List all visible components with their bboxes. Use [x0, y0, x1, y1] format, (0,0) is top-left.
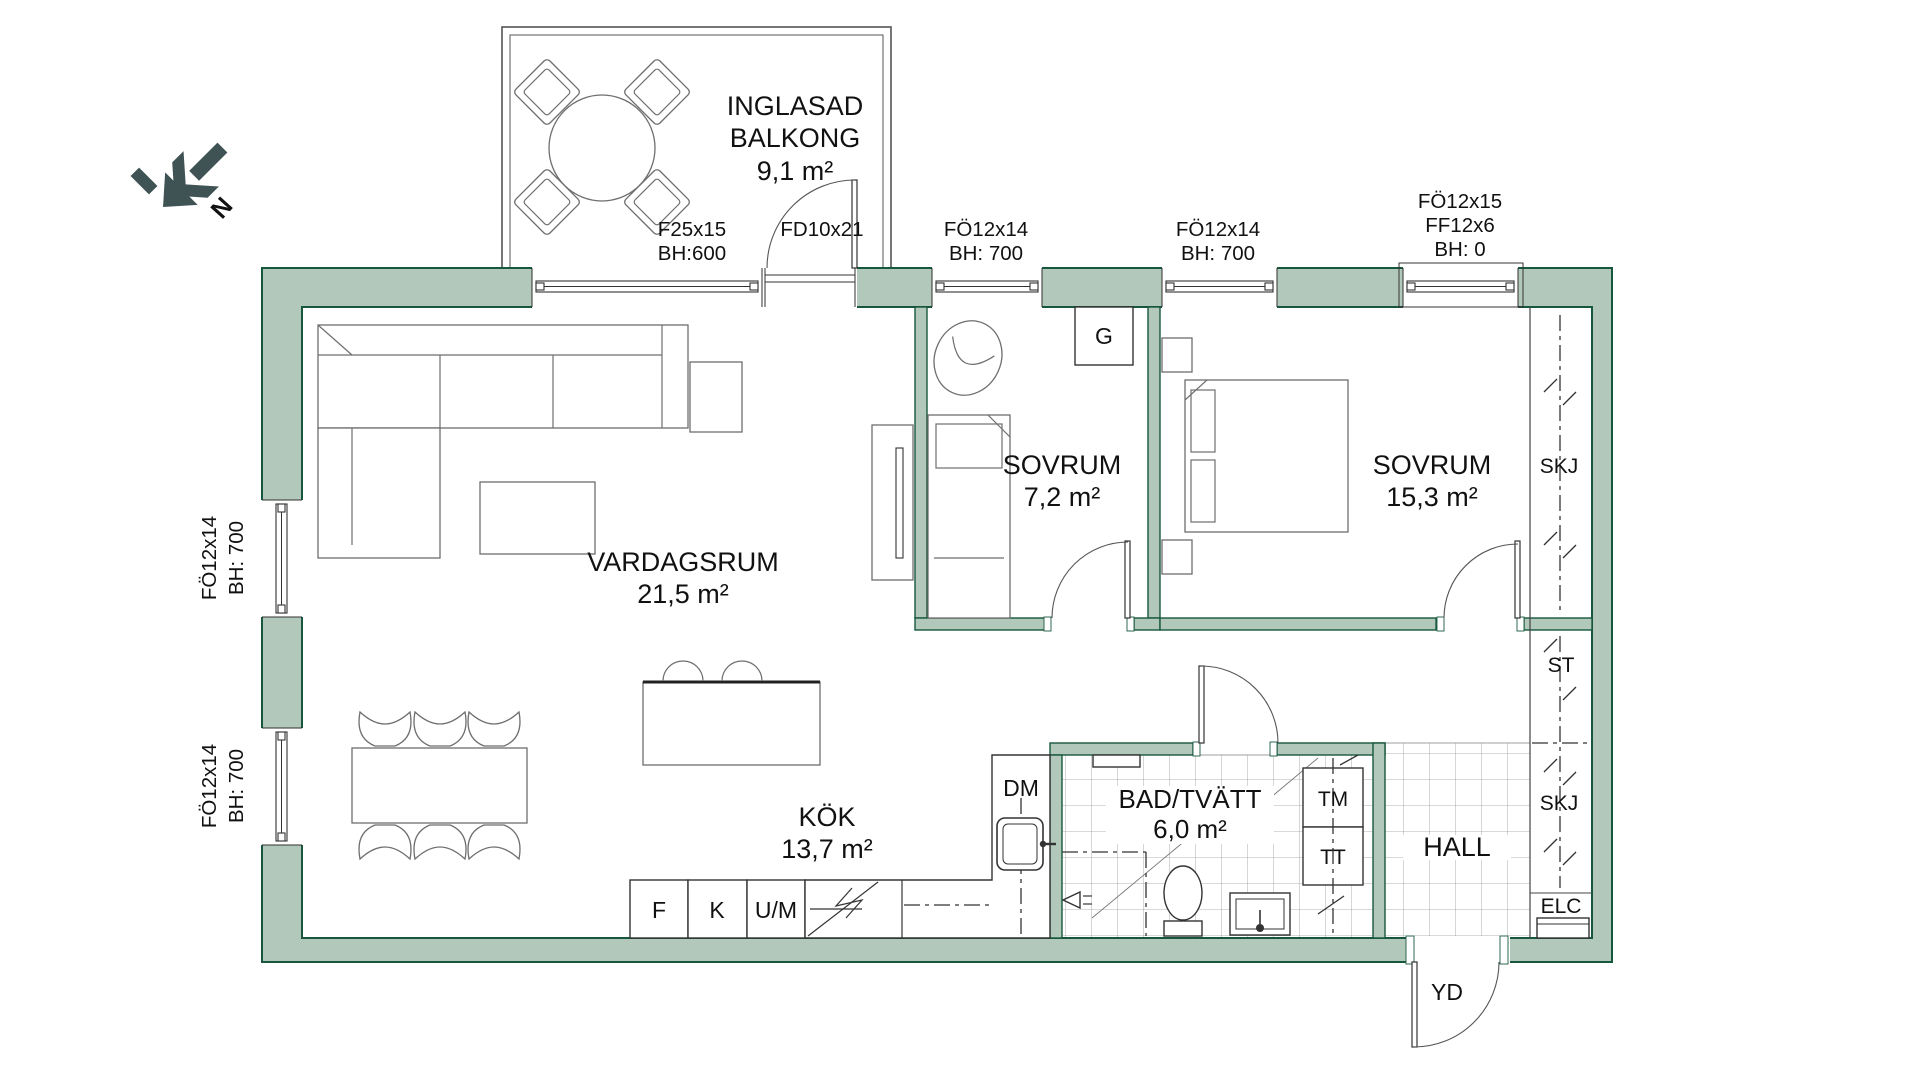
window-label: BH: 700: [225, 521, 248, 595]
balcony-name: BALKONG: [730, 123, 861, 153]
label-freezer: F: [652, 897, 666, 923]
window-label: FÖ12x14: [198, 744, 221, 828]
toilet: [1164, 866, 1202, 936]
balcony-name: INGLASAD: [727, 91, 864, 121]
label-entry-door: YD: [1431, 979, 1463, 1005]
label-wardrobe: G: [1095, 323, 1113, 349]
nightstand: [1162, 338, 1192, 372]
window-label: FÖ12x14: [1176, 218, 1260, 241]
room-name-kitchen: KÖK: [798, 802, 855, 832]
window-label: FÖ12x14: [198, 516, 221, 600]
label-skj-hall: SKJ: [1540, 792, 1579, 815]
shelf: [1093, 755, 1140, 767]
label-fridge: K: [709, 897, 725, 923]
tv-bench: [872, 425, 913, 580]
label-elc: ELC: [1541, 895, 1582, 918]
window-label: BH:600: [658, 242, 726, 265]
floor-plan: N: [0, 0, 1920, 1080]
window-label: BH: 0: [1434, 238, 1485, 261]
room-area-bedroom1: 7,2 m²: [1024, 482, 1101, 512]
door-label: FD10x21: [780, 218, 863, 241]
elc-cabinet: [1537, 918, 1589, 938]
label-st: ST: [1548, 654, 1575, 677]
single-bed: [928, 415, 1010, 618]
room-name-bedroom1: SOVRUM: [1003, 450, 1122, 480]
room-area-living: 21,5 m²: [637, 579, 729, 609]
window-label: BH: 700: [225, 749, 248, 823]
sink: [1230, 893, 1290, 935]
window-label: FÖ12x14: [944, 218, 1028, 241]
window-label: BH: 700: [1181, 242, 1255, 265]
room-area-bath: 6,0 m²: [1153, 814, 1227, 844]
window-label: F25x15: [658, 218, 726, 241]
room-area-bedroom2: 15,3 m²: [1386, 482, 1478, 512]
label-skj-bedroom: SKJ: [1540, 455, 1579, 478]
balcony-area: 9,1 m²: [757, 156, 834, 186]
side-table: [690, 362, 742, 432]
label-dishwasher: DM: [1003, 775, 1039, 801]
room-name-bedroom2: SOVRUM: [1373, 450, 1492, 480]
room-name-bath: BAD/TVÄTT: [1118, 784, 1261, 814]
window-label: FF12x6: [1425, 214, 1495, 237]
window-label: BH: 700: [949, 242, 1023, 265]
label-oven-micro: U/M: [755, 897, 797, 923]
label-washer: TM: [1318, 788, 1348, 811]
dining-table: [352, 712, 527, 859]
label-dryer: TT: [1320, 846, 1346, 869]
room-area-kitchen: 13,7 m²: [781, 834, 873, 864]
room-name-living: VARDAGSRUM: [587, 547, 779, 577]
nightstand: [1162, 540, 1192, 574]
room-name-hall: HALL: [1423, 832, 1491, 862]
window-label: FÖ12x15: [1418, 190, 1502, 213]
double-bed: [1185, 380, 1348, 532]
coffee-table: [480, 482, 595, 554]
